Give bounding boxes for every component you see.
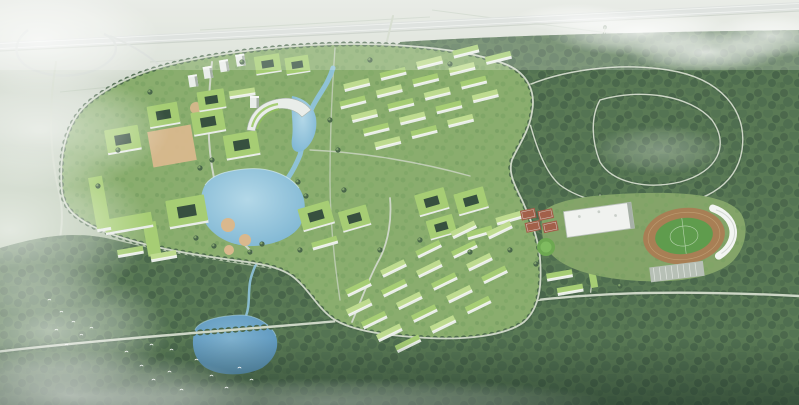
courtyard-building [197, 88, 227, 112]
tower-building [250, 96, 259, 108]
rendering-canvas [0, 0, 799, 405]
aerial-rendering [0, 0, 799, 405]
cloud [590, 125, 730, 175]
cloud [515, 4, 635, 32]
tower-building [188, 74, 199, 87]
round-lawn-inner [541, 242, 552, 253]
